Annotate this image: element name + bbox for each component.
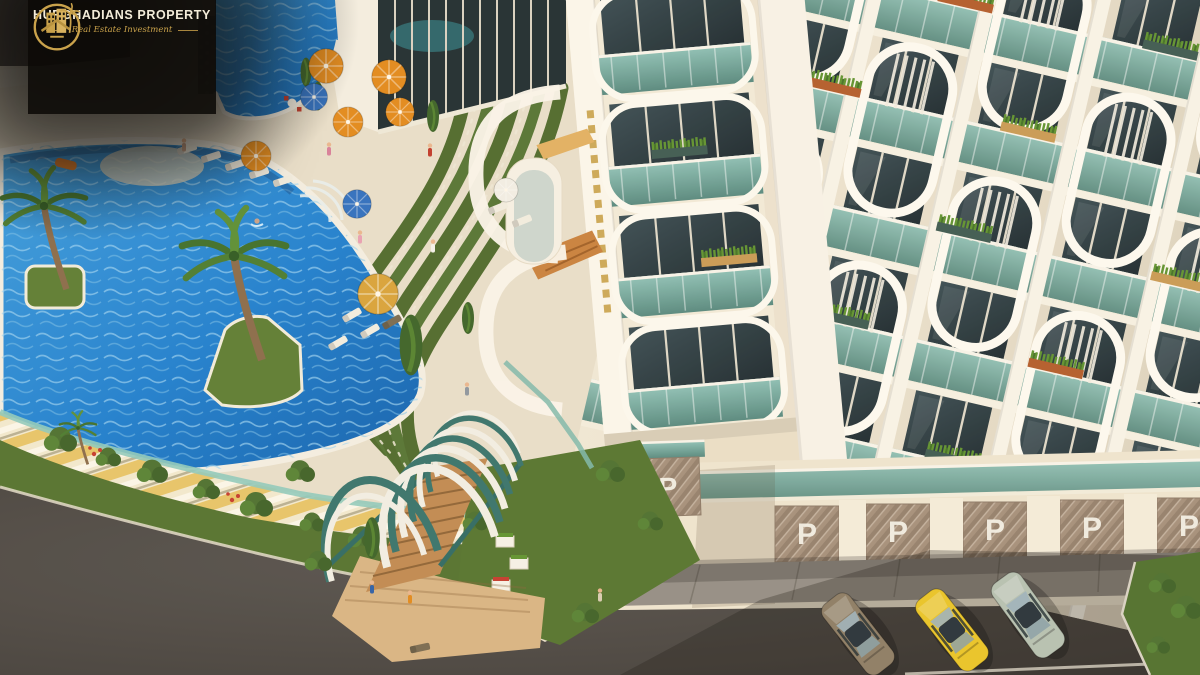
brand-logo-icon: [28, 0, 86, 58]
brand-watermark: HURGHADIANS PROPERTY Real Estate Investm…: [28, 0, 216, 114]
tagline-text: Real Estate Investment: [72, 25, 173, 35]
tagline-rule-right: [178, 30, 198, 31]
render-scene: P P P P P P: [0, 0, 1200, 675]
